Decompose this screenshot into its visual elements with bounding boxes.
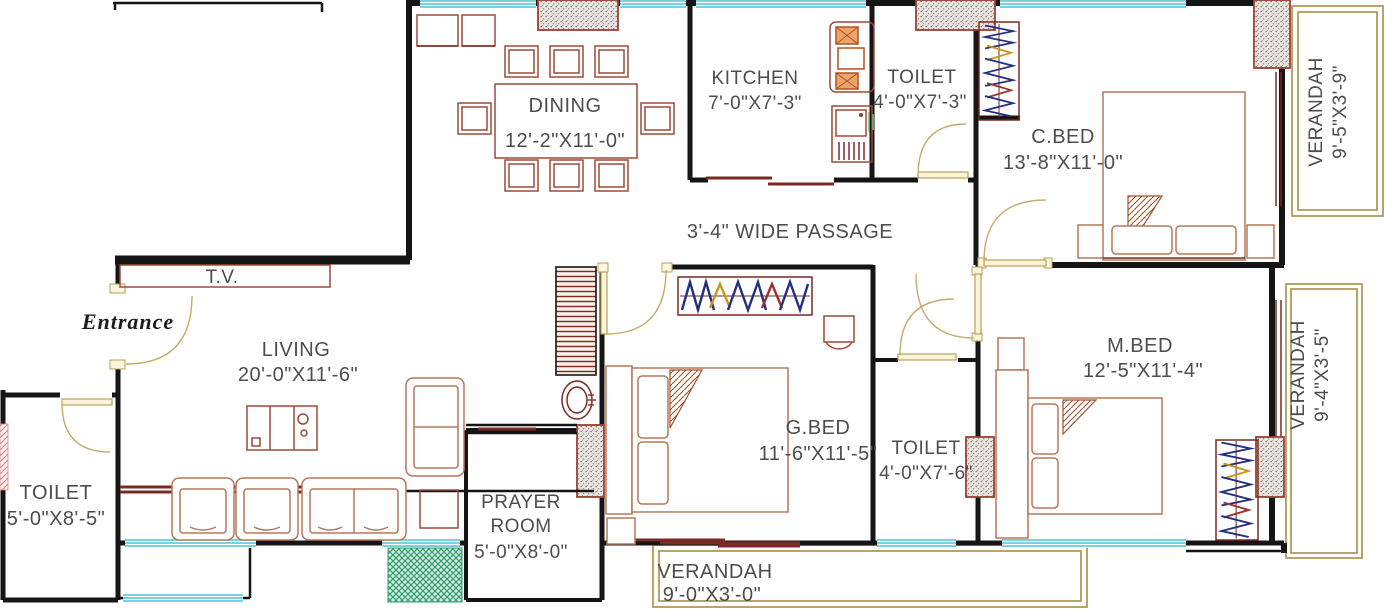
- shower-zigzag: [979, 22, 1019, 120]
- label-toilet-left: TOILET: [20, 482, 93, 504]
- cabinet: [417, 15, 458, 46]
- label-toilet-top: TOILET: [887, 67, 956, 88]
- label-toilet-mid: TOILET: [891, 438, 960, 459]
- sofa-double: [302, 478, 406, 540]
- dims-toilet-left: 5'-0"X8'-5": [7, 508, 106, 530]
- label-entrance: Entrance: [81, 309, 174, 334]
- dims-living: 20'-0"X11'-6": [238, 364, 358, 386]
- kitchen-counter: [830, 22, 874, 162]
- c-bed-door: [978, 200, 1052, 268]
- window: [420, 0, 536, 8]
- column: [1256, 437, 1284, 497]
- g-bed-wardrobe: [678, 277, 812, 315]
- window: [1000, 0, 1186, 8]
- toilet-left-door: [62, 399, 112, 452]
- verandah-window: [1276, 72, 1281, 206]
- chair: [505, 46, 538, 77]
- window: [696, 0, 866, 8]
- column: [577, 425, 604, 497]
- c-bed-bed: [1078, 92, 1274, 260]
- dims-prayer: 5'-0"X8'-0": [474, 542, 568, 563]
- column: [1254, 0, 1290, 68]
- label-m-bed: M.BED: [1107, 335, 1173, 357]
- dims-c-bed: 13'-8"X11'-0": [1003, 152, 1123, 174]
- dims-m-bed: 12'-5"X11'-4": [1083, 360, 1203, 382]
- label-living: LIVING: [262, 339, 331, 361]
- side-table: [420, 490, 458, 528]
- cabinet: [462, 15, 495, 46]
- dims-verandah-s: 9'-0"X3'-0": [663, 584, 762, 606]
- label-dining: DINING: [529, 95, 602, 117]
- dims-toilet-top: 4'-0"X7'-3": [873, 92, 967, 113]
- ladder-rack: [556, 267, 596, 375]
- sofa-single: [172, 478, 234, 540]
- dims-toilet-mid: 4'-0"X7'-6": [879, 463, 973, 484]
- green-mat: [388, 548, 462, 602]
- label-c-bed: C.BED: [1031, 126, 1095, 148]
- column: [916, 0, 995, 30]
- pink-hatch: [0, 424, 8, 490]
- chair: [550, 160, 583, 191]
- chair: [641, 103, 674, 134]
- label-verandah-ne: VERANDAH 9'-5"X3'-9": [1306, 57, 1351, 167]
- dims-g-bed: 11'-6"X11'-5": [759, 443, 878, 465]
- column: [538, 0, 618, 30]
- label-prayer-1: PRAYER: [481, 492, 561, 513]
- sink: [832, 106, 873, 162]
- window: [620, 0, 686, 8]
- window: [877, 539, 956, 548]
- label-kitchen: KITCHEN: [712, 68, 799, 89]
- svg-text:9'-5"X3'-9": 9'-5"X3'-9": [1330, 65, 1351, 159]
- m-bed-wardrobe: [1216, 440, 1258, 540]
- label-verandah-s: VERANDAH: [657, 561, 772, 583]
- sofa-single: [236, 478, 298, 540]
- chair: [505, 160, 538, 191]
- floor-plan: DINING 12'-2"X11'-0" KITCHEN 7'-0"X7'-3"…: [0, 0, 1385, 611]
- center-table: [247, 406, 317, 450]
- kitchen-sliding-door: [706, 178, 834, 184]
- sofa-side: [406, 378, 464, 476]
- dims-kitchen: 7'-0"X7'-3": [708, 93, 802, 114]
- g-bed-door: [598, 263, 672, 334]
- label-verandah-se: VERANDAH 9'-4"X3'-5": [1288, 320, 1333, 430]
- wash-basin: [562, 381, 596, 419]
- corner-basin: [824, 316, 854, 349]
- svg-text:VERANDAH: VERANDAH: [1306, 57, 1327, 167]
- label-g-bed: G.BED: [786, 417, 851, 439]
- chair: [595, 160, 628, 191]
- chair: [550, 46, 583, 77]
- svg-text:VERANDAH: VERANDAH: [1288, 320, 1309, 430]
- toilet-top-door: [918, 124, 968, 178]
- toilet-mid-door: [898, 299, 956, 360]
- label-prayer-2: ROOM: [490, 516, 551, 537]
- svg-text:9'-4"X3'-5": 9'-4"X3'-5": [1312, 328, 1333, 422]
- label-passage: 3'-4" WIDE PASSAGE: [687, 221, 893, 243]
- label-tv: T.V.: [206, 267, 239, 288]
- window: [123, 594, 243, 603]
- window: [1002, 539, 1186, 548]
- chair: [458, 103, 491, 134]
- dims-dining: 12'-2"X11'-0": [505, 130, 625, 152]
- chair: [595, 46, 628, 77]
